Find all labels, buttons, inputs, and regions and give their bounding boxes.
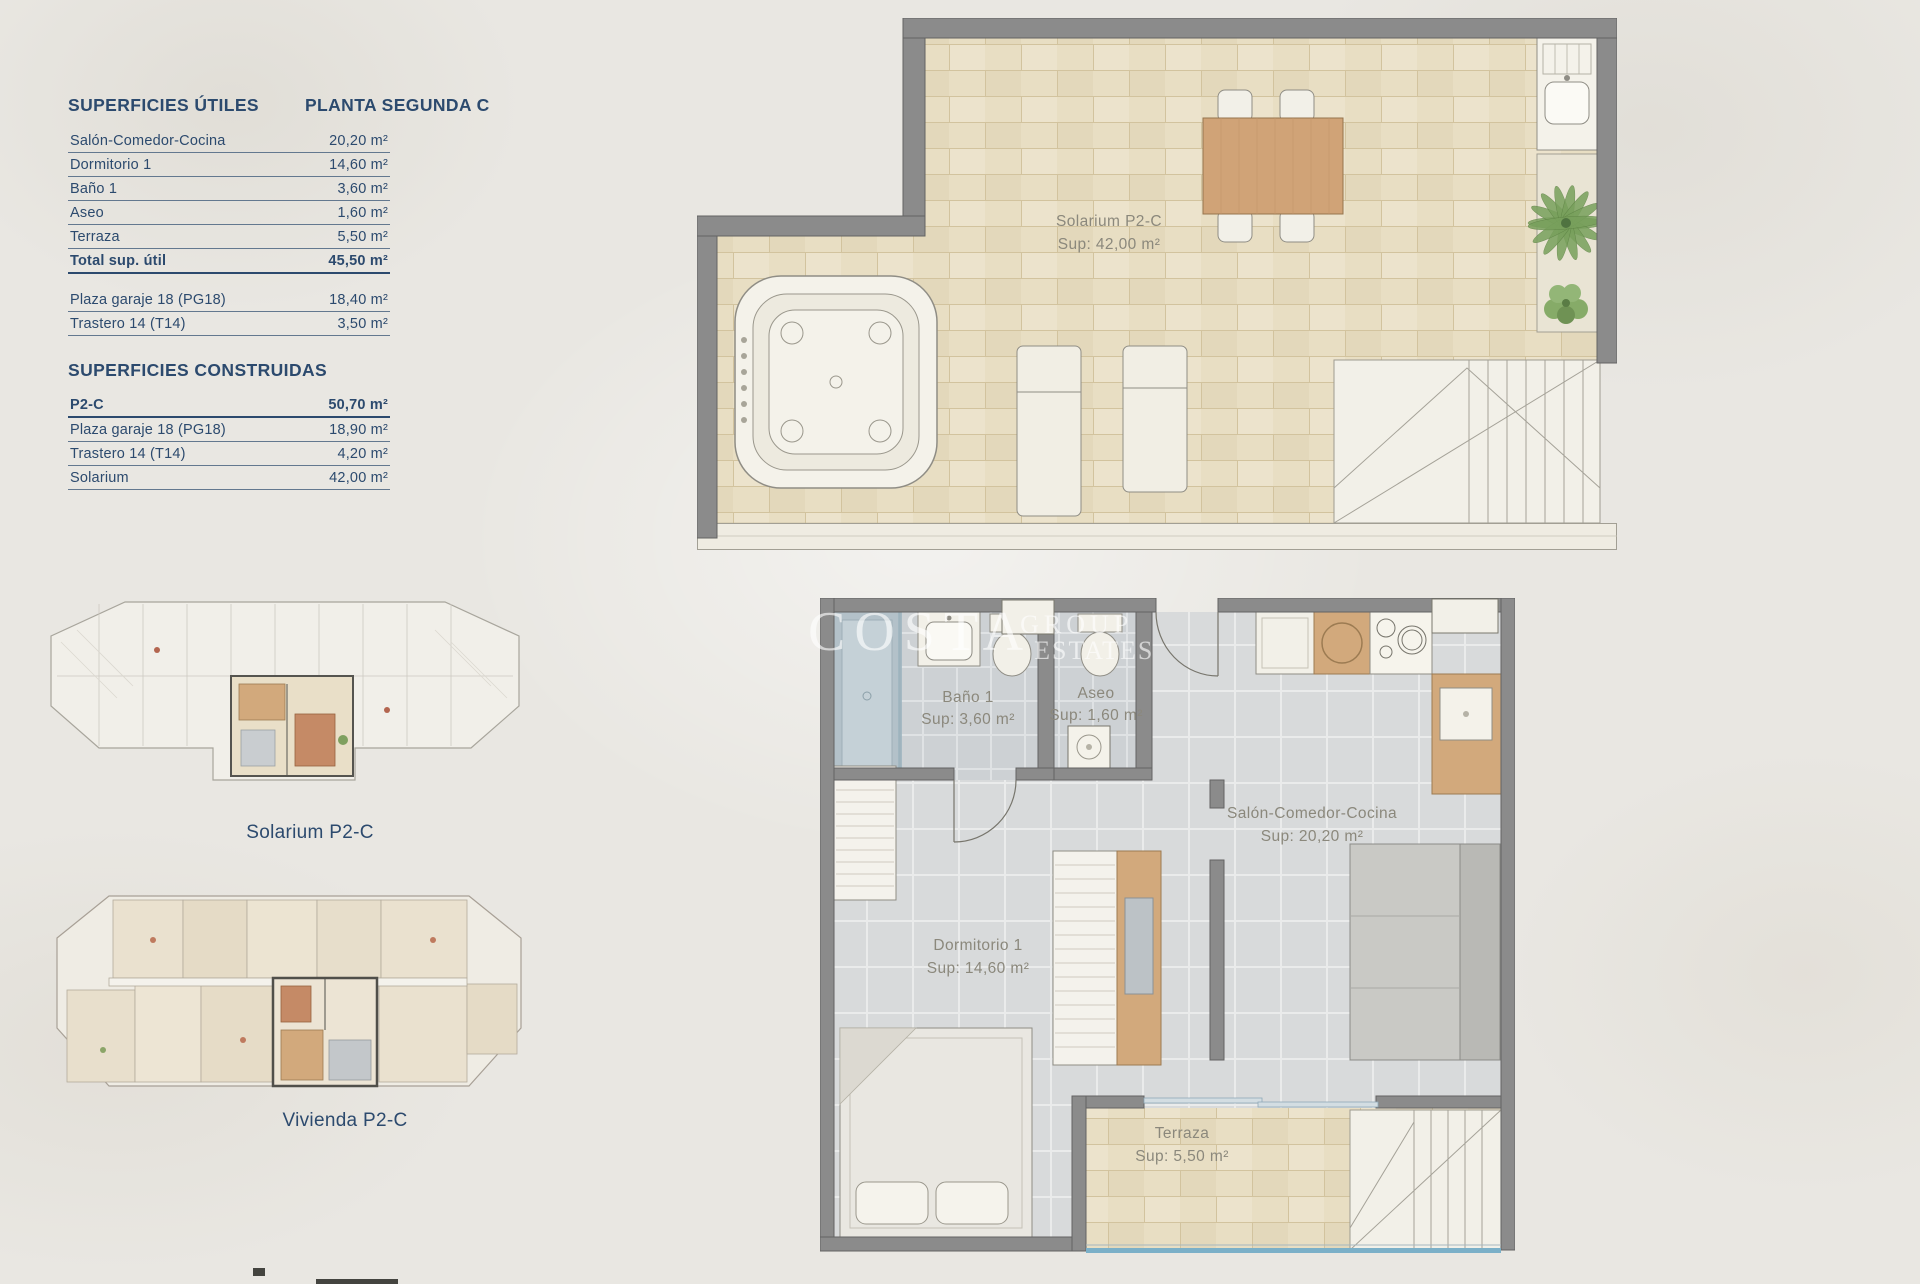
table-row: Plaza garaje 18 (PG18) 18,40 m² [68,288,390,312]
palm-plant-icon [338,735,348,745]
row-label: Dormitorio 1 [70,157,151,173]
planter [1528,154,1605,332]
bano-label: Baño 1 [942,689,994,706]
window [1432,599,1498,633]
table-row: Solarium 42,00 m² [68,466,390,490]
row-value: 14,60 m² [329,157,388,173]
table-header: SUPERFICIES ÚTILES PLANTA SEGUNDA C [68,95,390,116]
row-value: 18,90 m² [329,422,388,438]
washing-machine [1068,726,1110,768]
dining-table [1203,118,1343,214]
utility-shaft [1002,600,1054,634]
furniture-speck [384,707,390,713]
table-row: Plaza garaje 18 (PG18) 18,90 m² [68,418,390,442]
row-value: 42,00 m² [329,470,388,486]
furniture-speck [150,937,156,943]
stairs [1334,360,1600,523]
sun-lounger [1123,346,1187,492]
row-label: Terraza [70,229,120,245]
row-label: Trastero 14 (T14) [70,446,186,462]
table-row: Dormitorio 1 14,60 m² [68,153,390,177]
table-row: Trastero 14 (T14) 3,50 m² [68,312,390,336]
dormitorio-sup-label: Sup: 14,60 m² [927,960,1030,977]
dormitorio-label: Dormitorio 1 [933,937,1022,954]
row-value: 3,60 m² [337,181,388,197]
furniture-speck [430,937,436,943]
table-row: Aseo 1,60 m² [68,201,390,225]
row-value: 5,50 m² [337,229,388,245]
table-extras: Plaza garaje 18 (PG18) 18,40 m² Trastero… [68,288,390,336]
wardrobe [834,766,896,900]
salon-label: Salón-Comedor-Cocina [1227,805,1397,822]
row-label: Trastero 14 (T14) [70,316,186,332]
furniture-speck [154,647,160,653]
table-row-total: Total sup. útil 45,50 m² [68,249,390,274]
bathroom-sink [918,612,980,666]
row-label: Aseo [70,205,104,221]
outdoor-sink [1537,38,1597,150]
solarium-label: Solarium P2-C [1056,213,1162,230]
toilet [1078,614,1122,676]
highlighted-unit [273,978,377,1086]
chair [1218,210,1252,242]
row-value: 20,20 m² [329,133,388,149]
glass-balustrade [1086,1248,1501,1253]
solarium-sup-label: Sup: 42,00 m² [1058,236,1161,253]
terrace-parapet [698,524,1617,550]
pillow [936,1182,1008,1224]
aseo-sup-label: Sup: 1,60 m² [1049,707,1143,724]
pillow [856,1182,928,1224]
row-value: 3,50 m² [337,316,388,332]
mini-plan-solarium [37,590,533,818]
row-label: Total sup. útil [70,253,166,269]
row-label: Salón-Comedor-Cocina [70,133,226,149]
table-row: Salón-Comedor-Cocina 20,20 m² [68,129,390,153]
jacuzzi [735,276,937,488]
terraza-label: Terraza [1155,1125,1209,1142]
row-value: 18,40 m² [329,292,388,308]
chair [1280,90,1314,122]
highlighted-unit [231,676,353,776]
furniture-speck [240,1037,246,1043]
shower [834,612,902,780]
table-row: Terraza 5,50 m² [68,225,390,249]
solarium-floorplan: Solarium P2-C Sup: 42,00 m² [697,18,1617,553]
table-title-construidas: SUPERFICIES CONSTRUIDAS [68,360,390,381]
row-value: 4,20 m² [337,446,388,462]
table-title: SUPERFICIES ÚTILES [68,95,259,116]
table-subtitle: PLANTA SEGUNDA C [305,95,490,116]
row-label: Baño 1 [70,181,117,197]
mini-plan-solarium-caption: Solarium P2-C [60,822,560,844]
aseo-label: Aseo [1078,685,1115,702]
closet [1053,851,1117,1065]
sofa [1350,844,1500,1060]
row-value: 1,60 m² [337,205,388,221]
dresser [1117,851,1161,1065]
fridge [1256,612,1314,674]
chair [1218,90,1252,122]
sun-lounger [1017,346,1081,516]
mini-plan-vivienda [43,880,535,1108]
table-row: P2-C 50,70 m² [68,393,390,418]
row-label: Solarium [70,470,129,486]
vivienda-floorplan: Baño 1 Sup: 3,60 m² Aseo Sup: 1,60 m² Sa… [820,598,1515,1266]
terrace-stairs [1350,1110,1501,1250]
salon-sup-label: Sup: 20,20 m² [1261,828,1364,845]
row-value: 45,50 m² [328,253,388,269]
row-value: 50,70 m² [328,397,388,413]
terraza-sup-label: Sup: 5,50 m² [1135,1148,1229,1165]
row-label: Plaza garaje 18 (PG18) [70,422,226,438]
page-edge-mark [253,1268,265,1276]
table-row: Baño 1 3,60 m² [68,177,390,201]
plant-speck [100,1047,106,1053]
row-label: P2-C [70,397,104,413]
table-row: Trastero 14 (T14) 4,20 m² [68,442,390,466]
row-label: Plaza garaje 18 (PG18) [70,292,226,308]
chair [1280,210,1314,242]
mini-plan-vivienda-caption: Vivienda P2-C [95,1110,595,1132]
bano-sup-label: Sup: 3,60 m² [921,711,1015,728]
surface-table: SUPERFICIES ÚTILES PLANTA SEGUNDA C Saló… [68,95,390,490]
bed [840,1028,1032,1238]
